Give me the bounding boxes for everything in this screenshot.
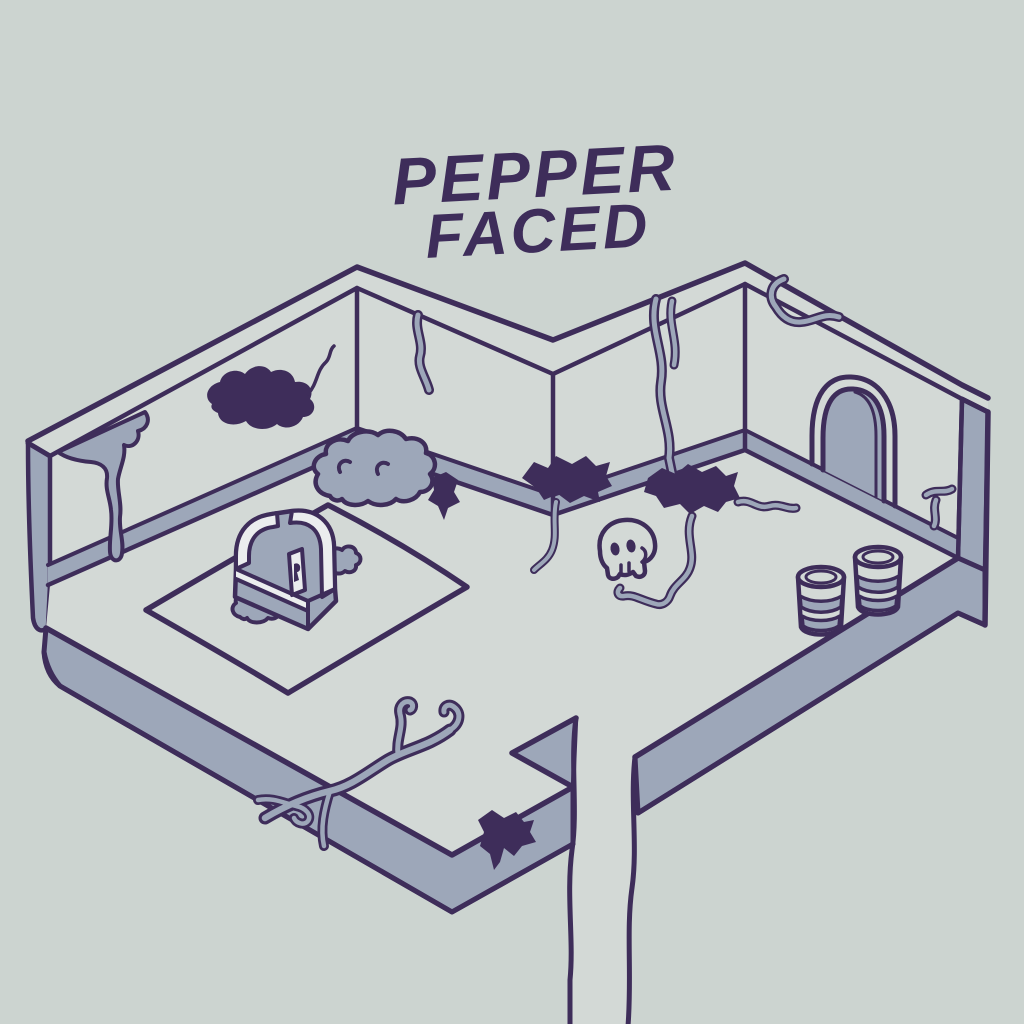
illustration: PEPPER FACED bbox=[0, 0, 1024, 1024]
barrel-front bbox=[798, 567, 844, 635]
dungeon-illustration-svg: PEPPER FACED bbox=[0, 0, 1024, 1024]
cloud-large bbox=[314, 431, 435, 505]
right-outer-edge bbox=[985, 412, 988, 625]
left-wall-end-face bbox=[28, 443, 50, 630]
skull bbox=[600, 520, 656, 579]
title: PEPPER FACED bbox=[390, 130, 682, 274]
title-line-2: FACED bbox=[424, 191, 652, 272]
barrel-back bbox=[855, 547, 901, 615]
